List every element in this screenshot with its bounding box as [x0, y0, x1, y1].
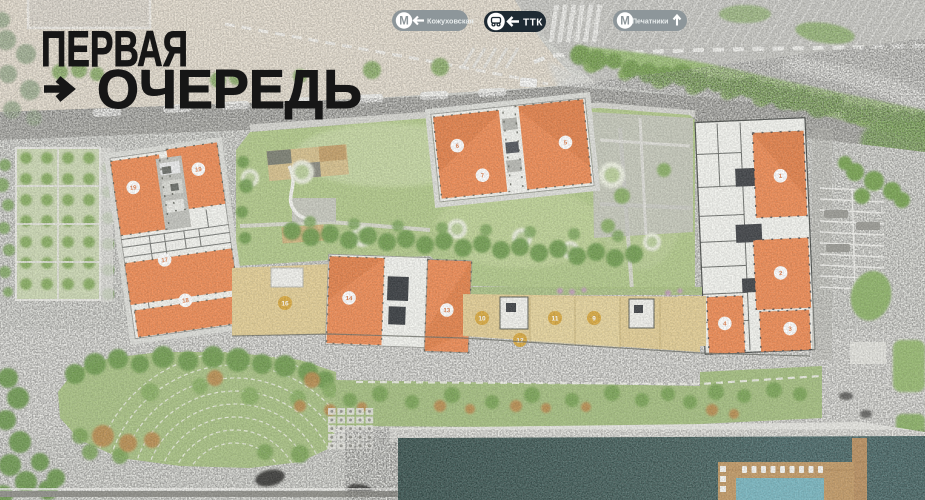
- svg-text:Печатники: Печатники: [632, 18, 668, 25]
- svg-text:М: М: [399, 16, 409, 28]
- svg-text:ОЧЕРЕДЬ: ОЧЕРЕДЬ: [97, 58, 362, 120]
- svg-text:Кожуховская: Кожуховская: [427, 16, 474, 25]
- svg-text:М: М: [620, 16, 630, 28]
- svg-text:ТТК: ТТК: [523, 17, 543, 28]
